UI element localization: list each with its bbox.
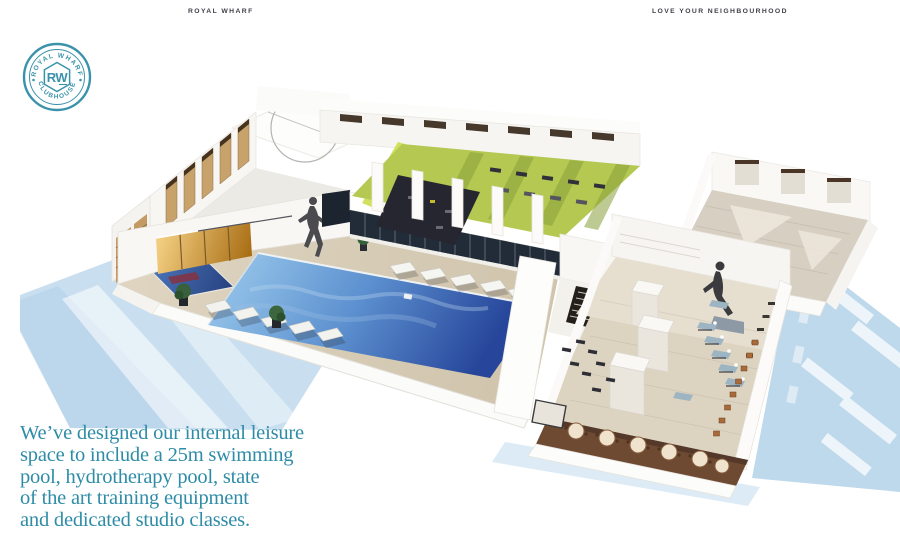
logo-monogram: RW xyxy=(47,70,69,85)
tagline-line: of the art training equipment xyxy=(20,488,304,510)
brochure-page: ROYAL WHARF LOVE YOUR NEIGHBOURHOOD ROYA… xyxy=(0,0,900,554)
motto-header: LOVE YOUR NEIGHBOURHOOD xyxy=(652,8,788,15)
tagline-line: and dedicated studio classes. xyxy=(20,510,304,532)
tagline-line: We’ve designed our internal leisure xyxy=(20,423,304,445)
tagline: We’ve designed our internal leisure spac… xyxy=(20,423,304,532)
brand-header: ROYAL WHARF xyxy=(188,8,254,15)
clubhouse-logo: ROYAL WHARF CLUBHOUSE RW xyxy=(19,39,95,115)
tagline-line: space to include a 25m swimming xyxy=(20,445,304,467)
tagline-line: pool, hydrotherapy pool, state xyxy=(20,467,304,489)
